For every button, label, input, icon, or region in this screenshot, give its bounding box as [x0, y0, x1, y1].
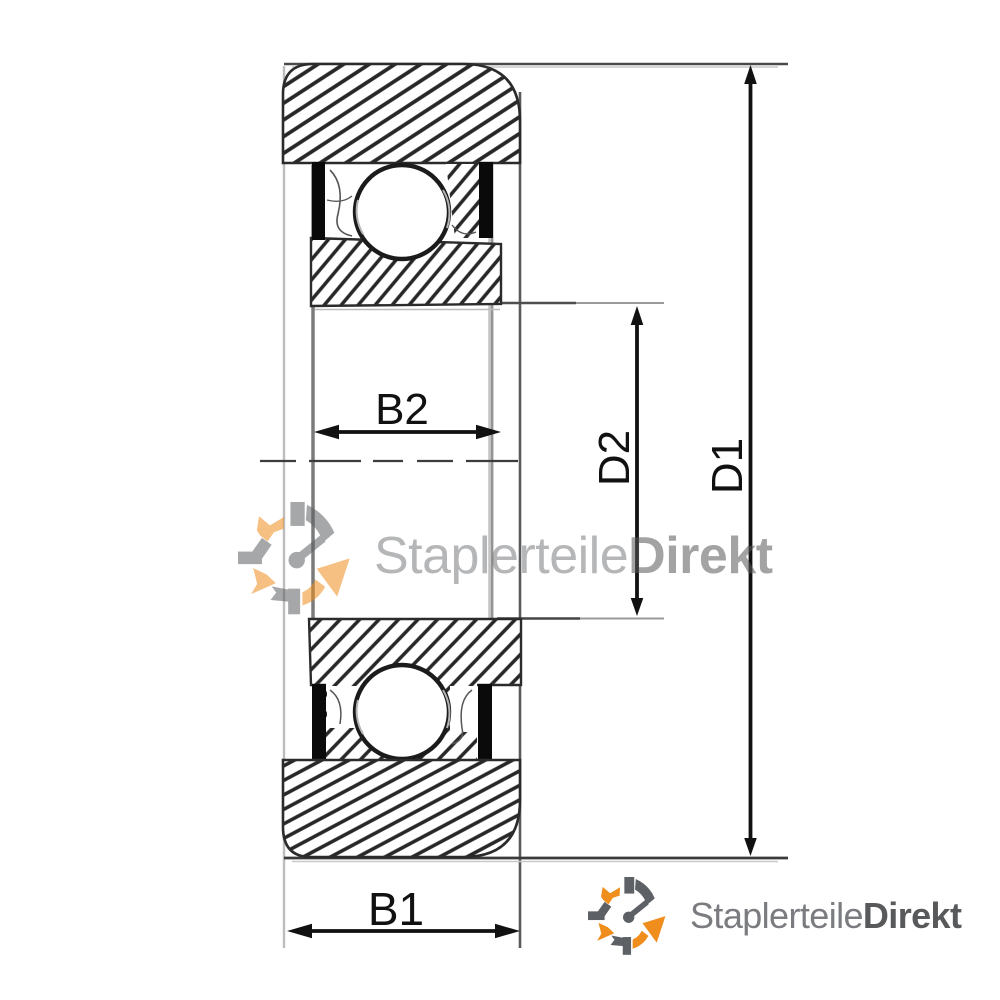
svg-text:StaplerteileDirekt: StaplerteileDirekt	[690, 895, 962, 936]
svg-text:D1: D1	[703, 438, 752, 494]
svg-text:B1: B1	[368, 883, 424, 935]
svg-text:StaplerteileDirekt: StaplerteileDirekt	[374, 527, 773, 585]
svg-text:D2: D2	[590, 430, 639, 486]
svg-text:B2: B2	[375, 385, 429, 434]
